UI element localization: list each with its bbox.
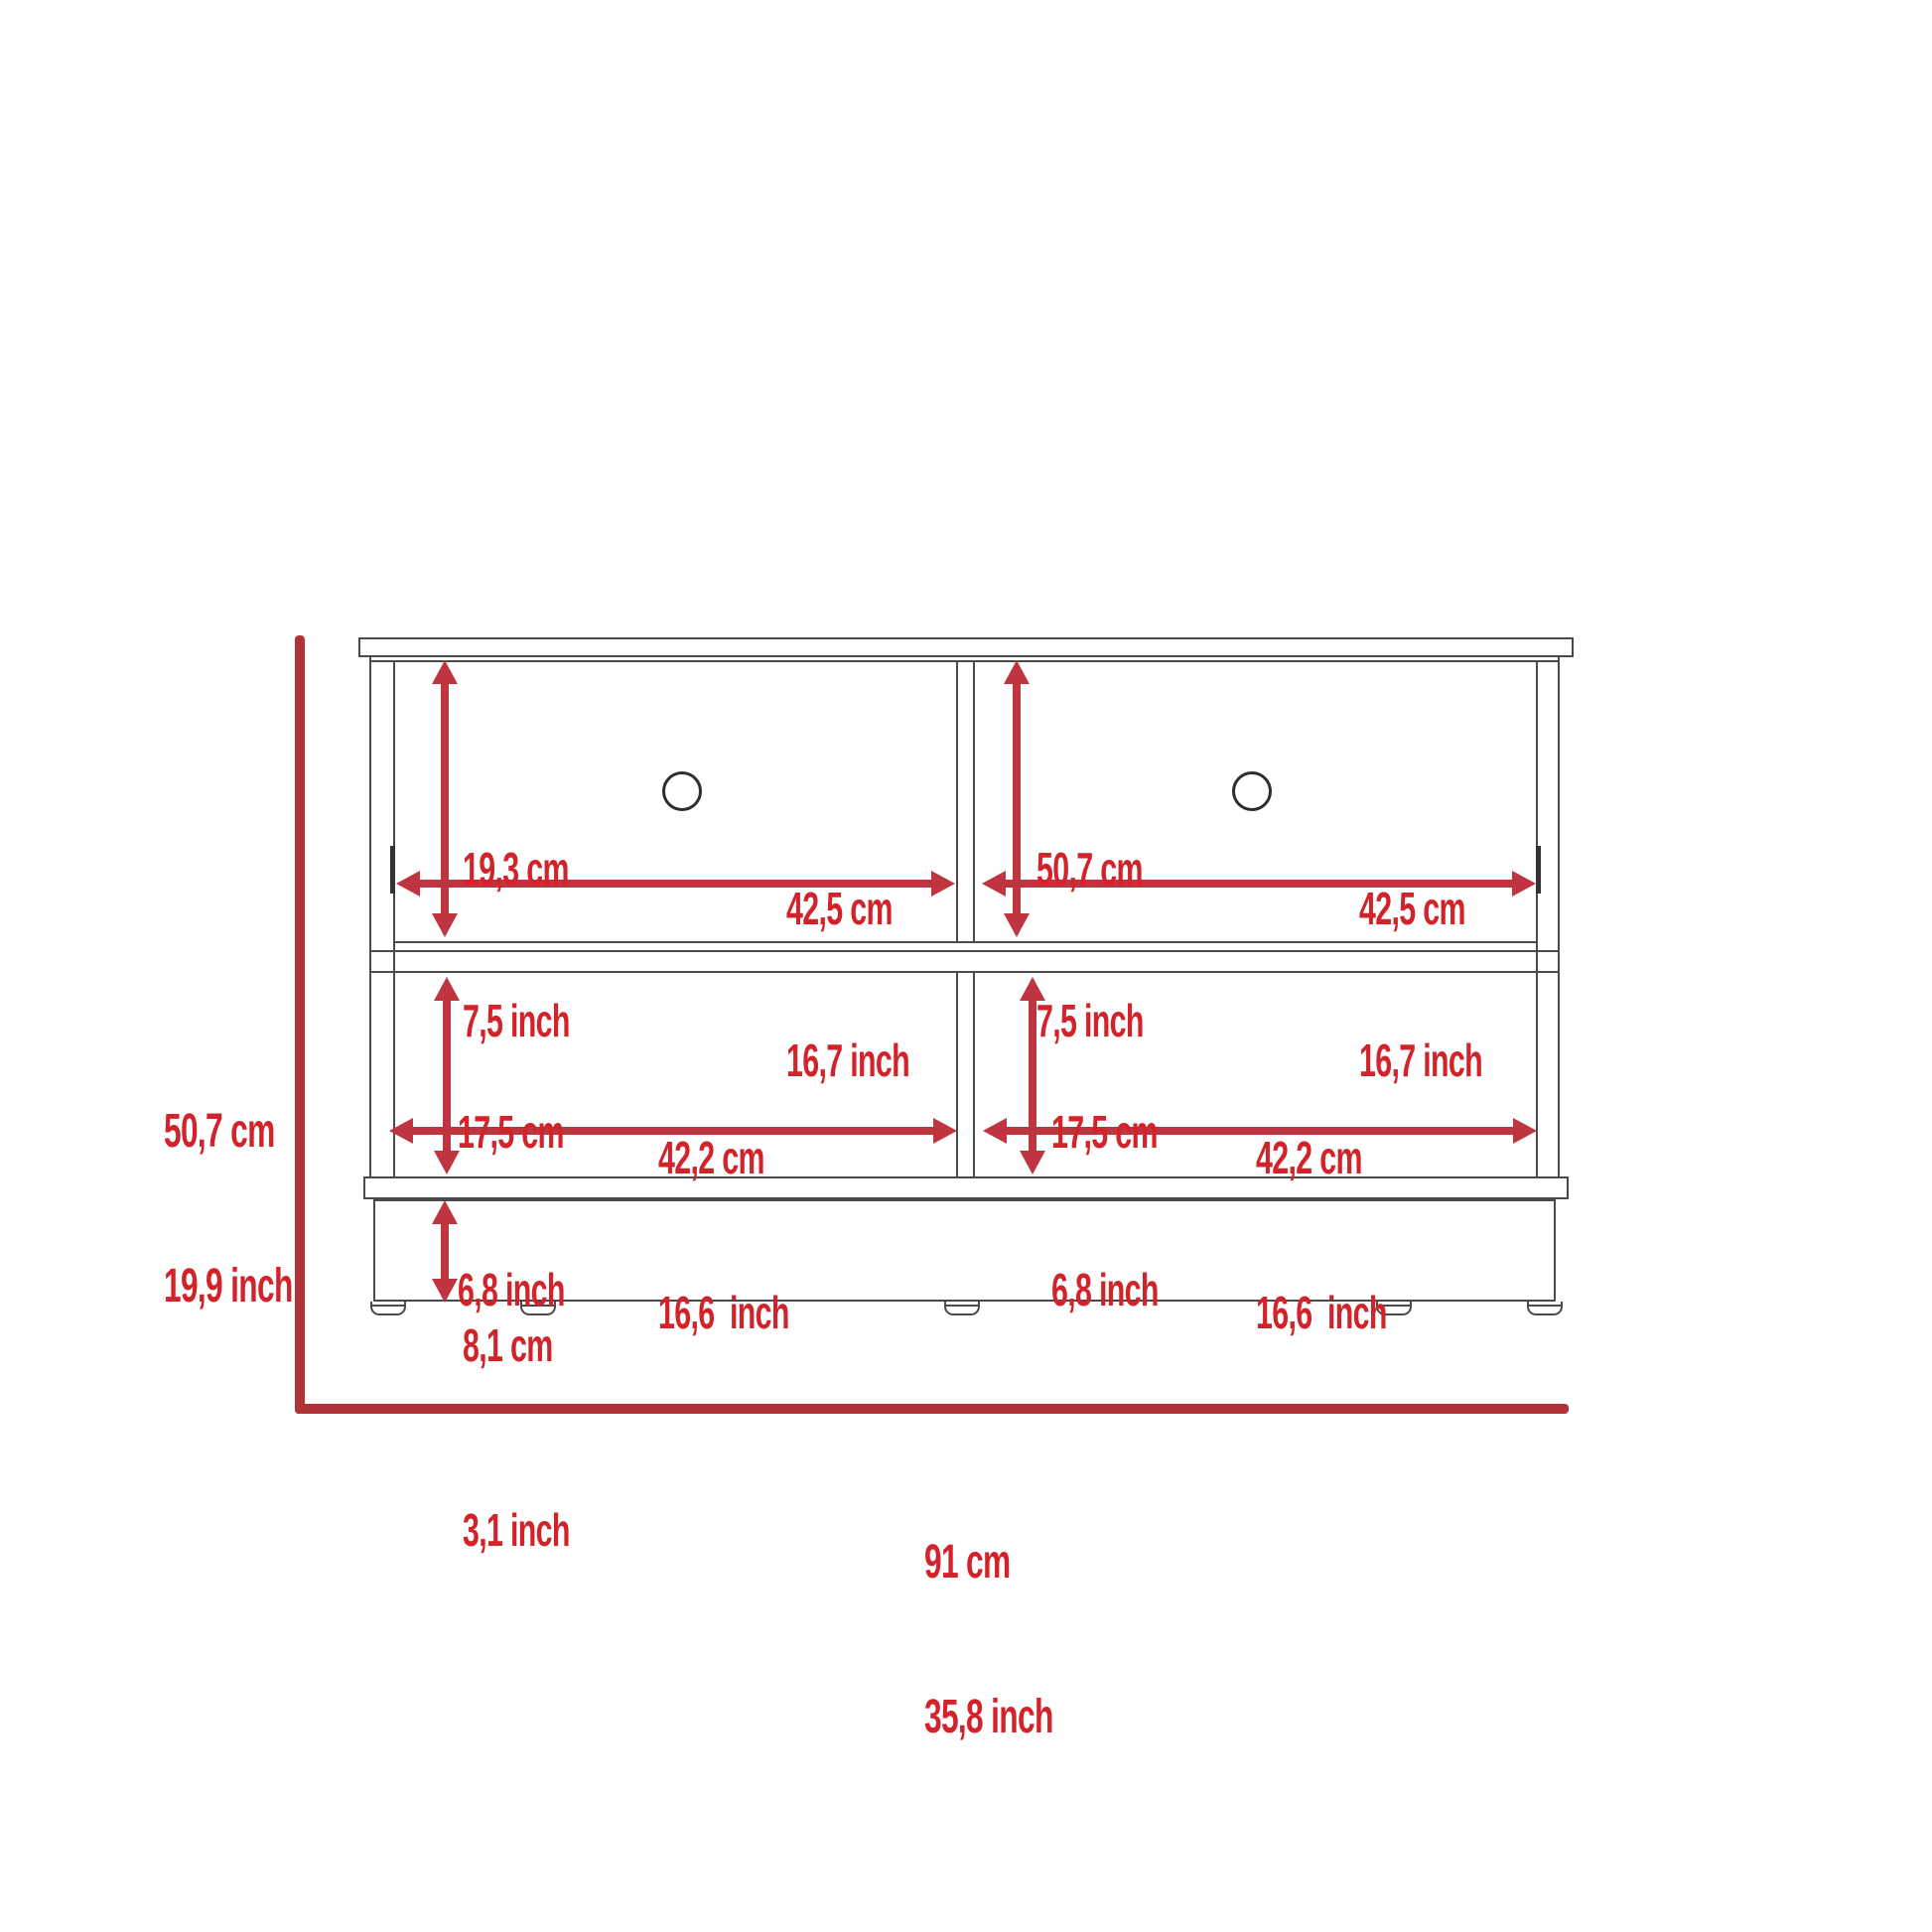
left-hinge-mark bbox=[390, 846, 395, 894]
left-drawer-width-label: 42,5 cm 16,7 inch bbox=[786, 782, 909, 1187]
drawer-divider-left-line bbox=[956, 660, 958, 941]
right-shelf-height-label: 17,5 cm 6,8 inch bbox=[1051, 1001, 1159, 1422]
left-inner-panel-line bbox=[393, 660, 395, 1176]
base-height-arrow bbox=[432, 1200, 458, 1303]
base-height-label: 8,1 cm 3,1 inch bbox=[463, 1191, 570, 1684]
under-top-board-line bbox=[370, 660, 1560, 662]
left-outer-panel-line bbox=[369, 657, 371, 1176]
right-outer-panel-line bbox=[1558, 657, 1560, 1176]
foot-1 bbox=[370, 1302, 406, 1315]
right-hinge-mark bbox=[1536, 846, 1541, 894]
overall-width-label: 91 cm 35,8 inch bbox=[924, 1434, 1053, 1847]
left-shelf-height-arrow bbox=[434, 977, 460, 1174]
overall-height-bracket-line bbox=[295, 635, 305, 1414]
drawer-divider-right-line bbox=[973, 660, 975, 941]
right-drawer-hole-icon bbox=[1232, 771, 1272, 811]
overall-height-label: 50,7 cm 19,9 inch bbox=[164, 1003, 293, 1416]
dimension-diagram: 19,3 cm 7,5 inch 42,5 cm 16,7 inch 50,7 … bbox=[0, 0, 1932, 1932]
shelf-divider-right-line bbox=[973, 973, 975, 1176]
foot-5 bbox=[1527, 1302, 1563, 1315]
shelf-divider-left-line bbox=[956, 973, 958, 1176]
left-shelf-width-label: 42,2 cm 16,6 inch bbox=[658, 1029, 789, 1442]
left-drawer-hole-icon bbox=[662, 771, 702, 811]
right-shelf-width-label: 42,2 cm 16,6 inch bbox=[1256, 1029, 1387, 1442]
right-inner-panel-line bbox=[1536, 660, 1538, 1176]
foot-3 bbox=[944, 1302, 980, 1315]
top-board bbox=[358, 637, 1574, 657]
